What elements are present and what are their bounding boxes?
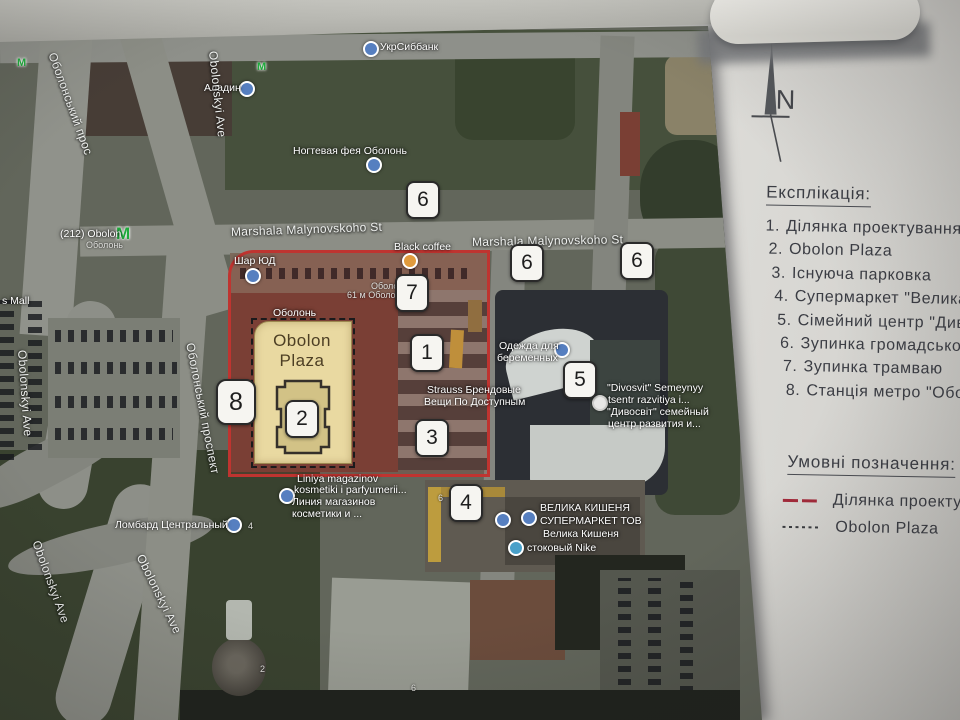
- legend-item-4: 4.Супермаркет "Велика киш: [774, 288, 960, 310]
- legend-item-number: 1.: [765, 218, 780, 235]
- photographed-site-plan: Obolon Plaza МММ УкрСиббанкАладинНогтева…: [0, 0, 960, 720]
- legend-item-label: Супермаркет "Велика киш: [795, 288, 960, 309]
- legend-item-7: 7.Зупинка трамваю: [783, 358, 943, 379]
- legend-item-number: 3.: [771, 264, 786, 281]
- legend-item-label: Зупинка громадського т: [800, 335, 960, 355]
- legend-panel: N Експлікація: 1.Ділянка проектування2.O…: [0, 0, 960, 720]
- legend-item-6: 6.Зупинка громадського т: [780, 335, 960, 357]
- legend-item-number: 8.: [786, 382, 801, 399]
- legend-item-2: 2.Obolon Plaza: [768, 241, 892, 261]
- legend-symbol-label: Obolon Plaza: [835, 519, 939, 539]
- explication-title: Експлікація:: [766, 183, 871, 208]
- legend-item-label: Існуюча парковка: [792, 265, 932, 284]
- red-solid-line-icon: [783, 498, 817, 502]
- legend-item-number: 5.: [777, 311, 792, 328]
- black-dotted-line-icon: [782, 526, 819, 529]
- legend-item-label: Ділянка проектування: [786, 218, 960, 238]
- legend-item-1: 1.Ділянка проектування: [765, 218, 960, 239]
- legend-item-label: Сімейний центр "Дивосвіт: [798, 312, 960, 333]
- legend-symbol-row: Ділянка проектуван: [783, 491, 960, 513]
- legend-item-number: 7.: [783, 358, 798, 375]
- legend-item-5: 5.Сімейний центр "Дивосвіт: [777, 311, 960, 333]
- legend-item-number: 6.: [780, 335, 795, 352]
- legend-item-label: Зупинка трамваю: [803, 359, 942, 378]
- symbols-title: Умовні позначення:: [787, 452, 956, 478]
- north-label: N: [776, 85, 796, 116]
- legend-symbol-label: Ділянка проектуван: [833, 492, 960, 513]
- legend-symbol-row: Obolon Plaza: [782, 518, 939, 539]
- legend-item-8: 8.Станція метро "Оболонь: [786, 382, 960, 404]
- whiteboard-eraser: [709, 0, 920, 45]
- legend-item-label: Obolon Plaza: [789, 241, 893, 260]
- legend-item-3: 3.Існуюча парковка: [771, 264, 931, 285]
- legend-item-number: 2.: [768, 241, 783, 258]
- legend-item-label: Станція метро "Оболонь: [806, 382, 960, 402]
- legend-item-number: 4.: [774, 288, 789, 305]
